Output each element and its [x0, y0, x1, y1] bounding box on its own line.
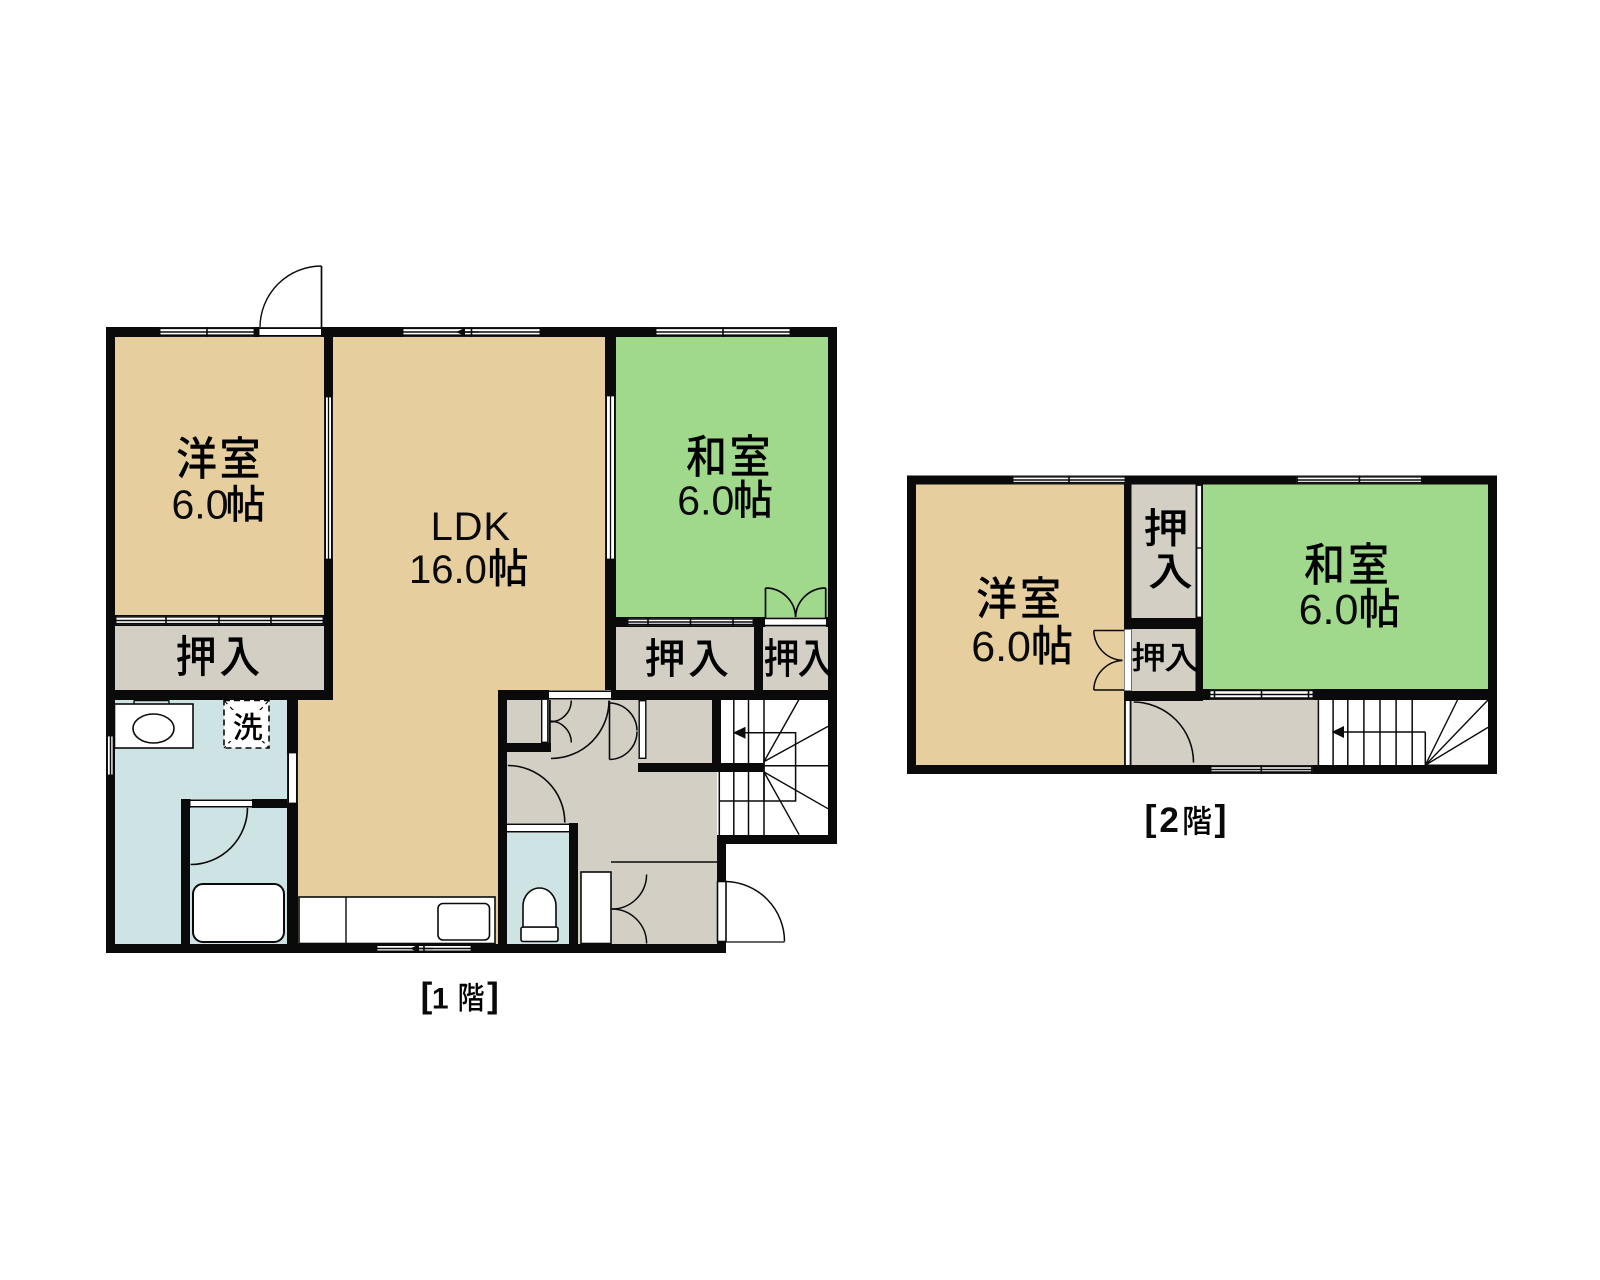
- svg-text:2: 2: [1159, 801, 1178, 840]
- svg-text:6.0: 6.0: [1299, 586, 1359, 634]
- svg-text:]: ]: [487, 976, 499, 1015]
- svg-text:]: ]: [1215, 798, 1227, 839]
- svg-text:16.0: 16.0: [409, 548, 487, 592]
- svg-text:6.0: 6.0: [971, 623, 1031, 671]
- svg-text:1: 1: [432, 983, 449, 1016]
- svg-text:6.0: 6.0: [172, 482, 229, 528]
- svg-text:[: [: [1145, 798, 1157, 839]
- svg-text:6.0: 6.0: [677, 478, 734, 524]
- svg-text:[: [: [421, 976, 433, 1015]
- svg-text:LDK: LDK: [431, 505, 511, 549]
